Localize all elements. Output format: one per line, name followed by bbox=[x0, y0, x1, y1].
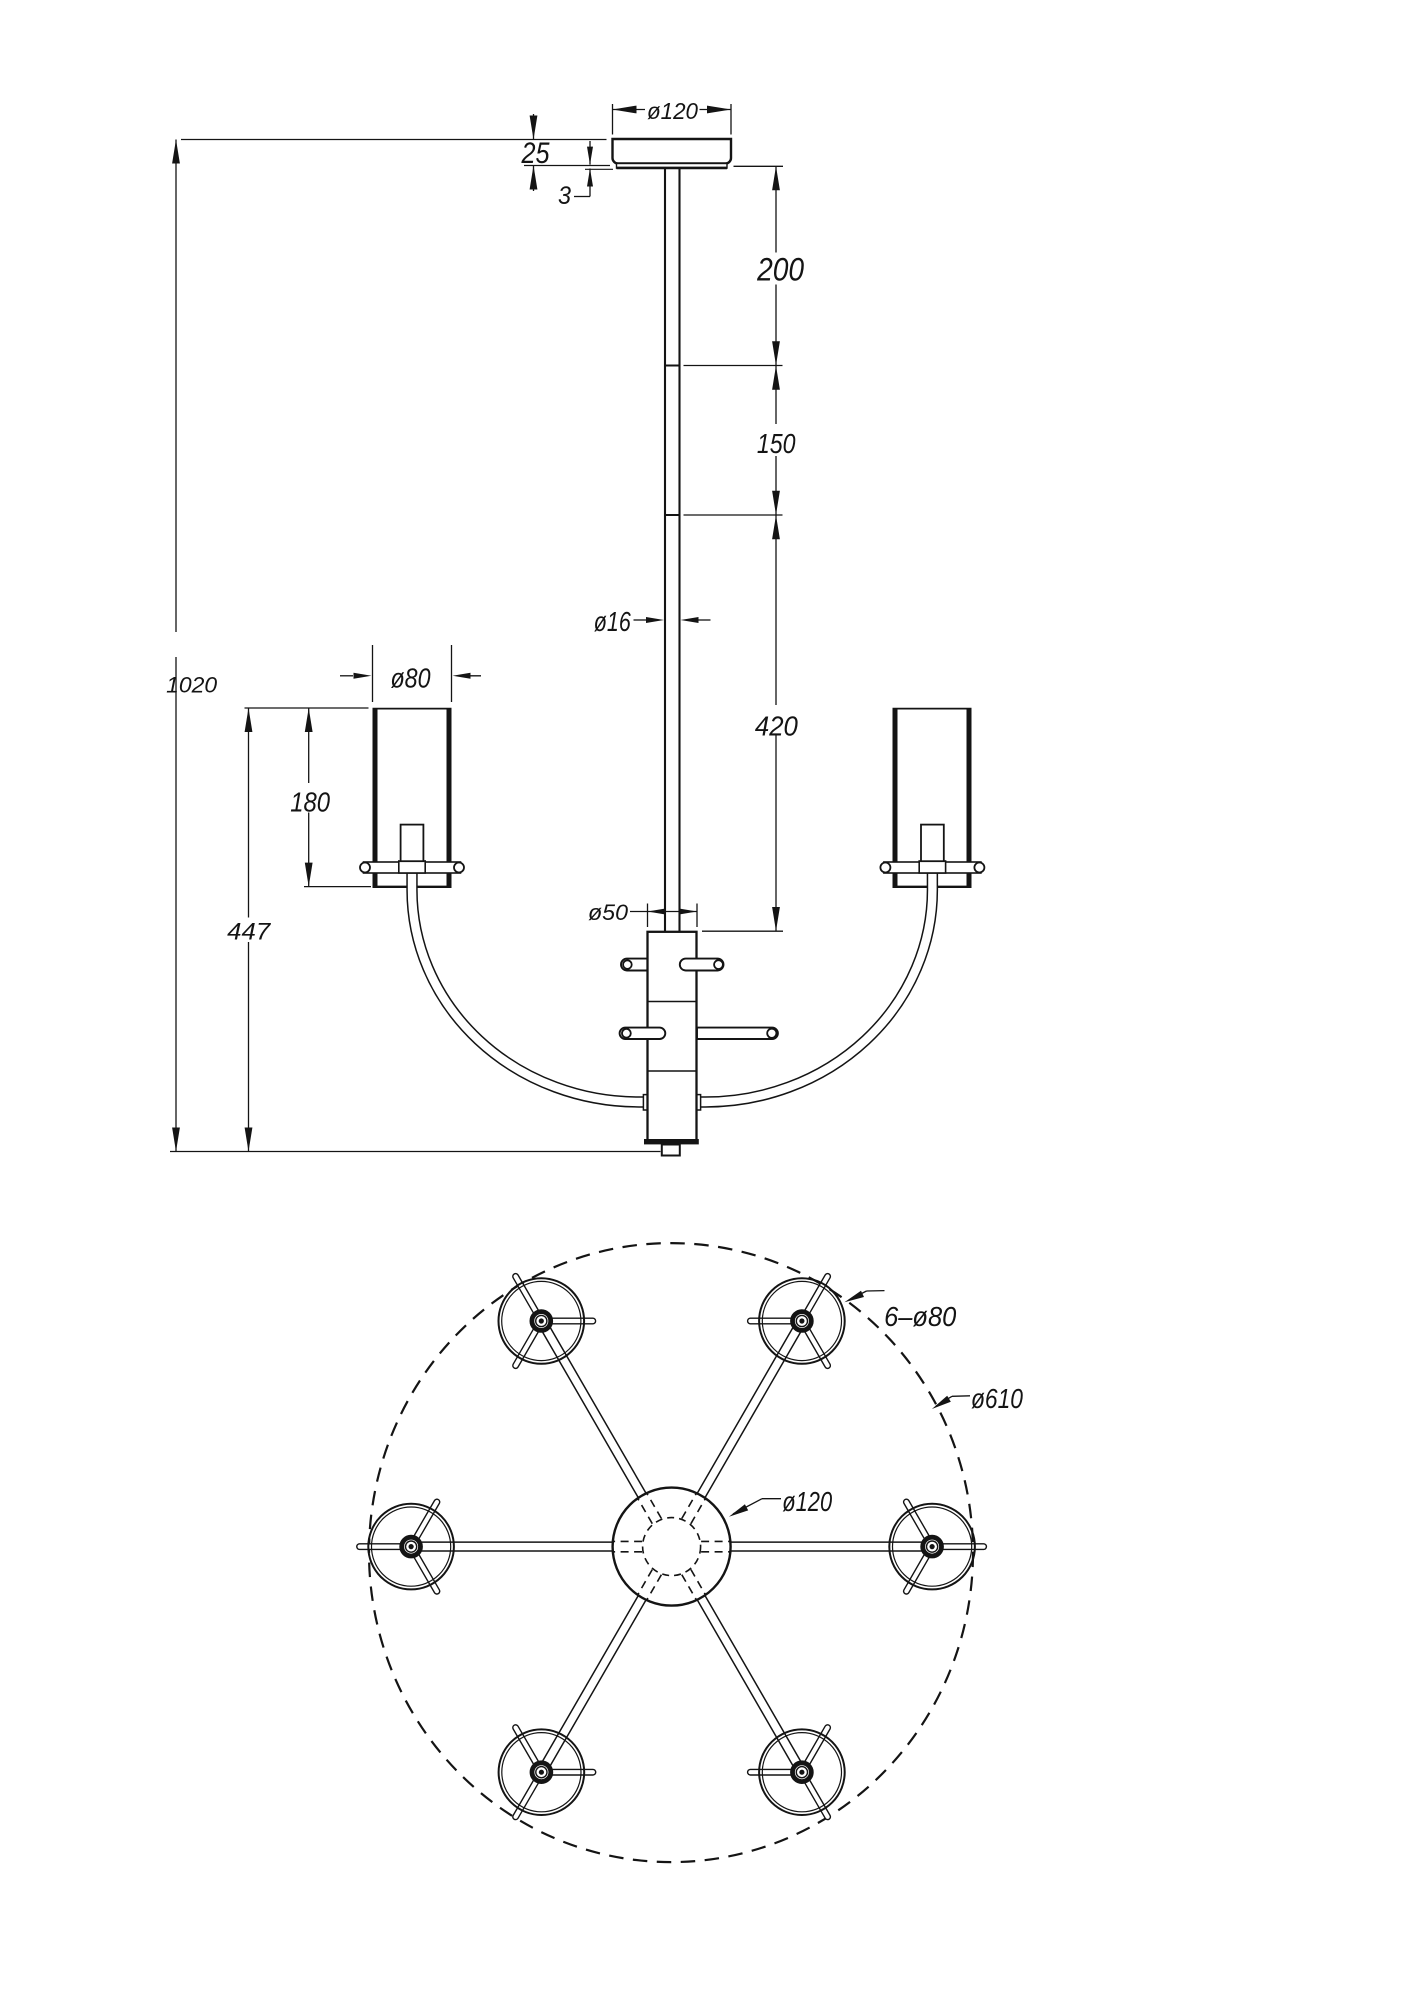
svg-text:6–ø80: 6–ø80 bbox=[884, 1301, 957, 1332]
svg-text:ø120: ø120 bbox=[647, 98, 698, 124]
svg-text:420: 420 bbox=[755, 710, 798, 741]
svg-text:ø16: ø16 bbox=[594, 606, 631, 637]
svg-text:180: 180 bbox=[290, 786, 330, 817]
svg-text:25: 25 bbox=[521, 137, 550, 170]
svg-text:ø50: ø50 bbox=[588, 900, 629, 925]
svg-text:447: 447 bbox=[227, 918, 272, 945]
svg-text:ø610: ø610 bbox=[971, 1383, 1023, 1414]
svg-text:150: 150 bbox=[757, 428, 796, 459]
svg-text:ø120: ø120 bbox=[782, 1486, 832, 1517]
svg-text:3: 3 bbox=[558, 183, 571, 210]
svg-text:200: 200 bbox=[756, 251, 804, 287]
svg-text:ø80: ø80 bbox=[391, 663, 431, 694]
svg-text:1020: 1020 bbox=[166, 672, 217, 697]
